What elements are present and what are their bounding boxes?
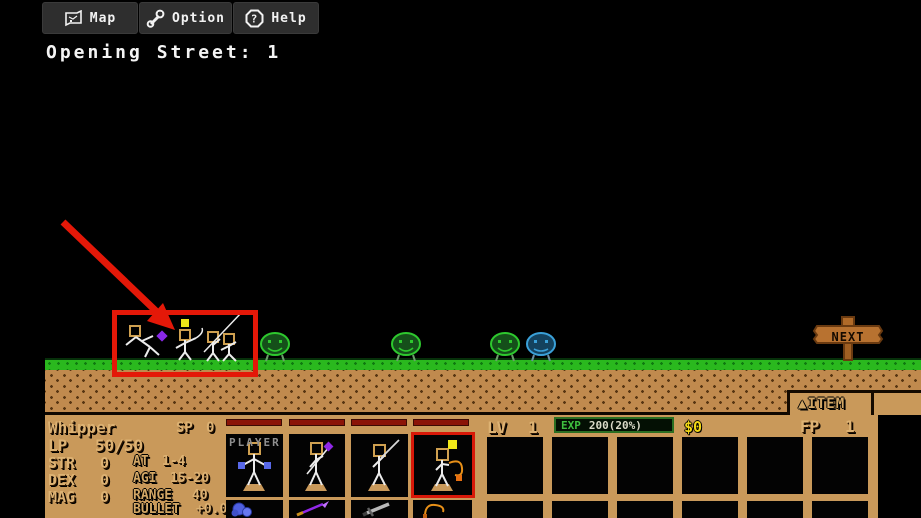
svg-text:?: ? [251,12,259,25]
item-tab-label: ITEM [807,396,845,412]
next-sign: NEXT [812,316,884,362]
at-value: 1-4 [162,454,185,469]
str-label: STR [48,454,75,472]
annotation-arrow [52,212,192,340]
wrench-icon [146,9,165,28]
sp-label: SP [176,420,193,436]
str-value: 0 [100,454,109,472]
spearman-figure-icon [289,434,345,497]
blue-fist-icon [226,500,283,518]
agi-value: 15-20 [170,471,209,486]
inventory-slot[interactable] [682,501,738,518]
lp-bar-slot-1 [226,419,282,426]
orange-whip-icon [413,500,472,518]
lp-bar-slot-3 [351,419,407,426]
exp-value: 200(20%) [589,419,642,432]
game-screen: Map Option ? Help Opening Street: 1 [0,0,921,518]
item-tab-button[interactable]: ▲ITEM [787,390,921,415]
lp-bar-slot-2 [289,419,345,426]
bullet-value: +0.0 [196,502,227,517]
fp-value: 1 [845,417,855,436]
gladiator-figure-icon [351,434,408,497]
player-label: PLAYER [229,436,281,449]
option-button[interactable]: Option [139,2,232,34]
party-slot-2[interactable] [289,434,345,497]
lp-label: LP [48,436,67,455]
inventory-slot[interactable] [812,501,868,518]
fp-label: FP [800,417,819,436]
panel-right-void [878,437,921,518]
green-smiley-walker-icon [488,332,522,362]
purple-spear-icon [289,500,345,518]
inventory-slot[interactable] [552,437,608,494]
item-tab-divider [871,393,874,415]
lv-label: LV [487,418,506,437]
agi-label: AGI [133,471,156,486]
dex-label: DEX [48,471,75,489]
map-icon [64,10,83,27]
next-sign-label: NEXT [832,330,865,344]
dex-value: 0 [100,471,109,489]
selected-slot-border [411,432,475,498]
mag-value: 0 [100,488,109,506]
exp-bar: EXP 200(20%) [554,417,674,433]
sp-value: 0 [206,420,214,436]
lp-bar-slot-4 [413,419,469,426]
help-button-label: Help [271,11,306,26]
green-smiley-walker-icon [389,332,423,362]
map-button[interactable]: Map [42,2,138,34]
blue-smiley-walker-icon [524,332,558,362]
inventory-slot[interactable] [747,501,803,518]
weapon-slot-3[interactable] [351,500,408,518]
lp-value: 50/50 [95,436,143,455]
range-value: 40 [192,488,208,503]
question-icon: ? [245,9,264,28]
weapon-slot-2[interactable] [289,500,345,518]
inventory-slot[interactable] [812,437,868,494]
weapon-slot-1[interactable] [226,500,283,518]
inventory-slot[interactable] [487,437,543,494]
help-button[interactable]: ? Help [233,2,319,34]
gray-sword-icon [351,500,408,518]
inventory-slot[interactable] [682,437,738,494]
lv-value: 1 [528,418,538,437]
inventory-slot[interactable] [552,501,608,518]
map-button-label: Map [90,11,116,26]
inventory-slot[interactable] [617,437,673,494]
weapon-slot-4[interactable] [413,500,472,518]
at-label: AT [133,454,149,469]
money-value: $0 [684,418,702,436]
mag-label: MAG [48,488,75,506]
stage-title: Opening Street: 1 [46,42,281,63]
inventory-slot[interactable] [617,501,673,518]
class-name: Whipper [48,418,115,437]
selection-marker-icon [448,440,457,449]
exp-label: EXP [561,419,581,432]
range-label: RANGE [133,488,172,503]
inventory-slot[interactable] [487,501,543,518]
option-button-label: Option [172,11,225,26]
inventory-slot[interactable] [747,437,803,494]
bullet-label: BULLET [133,502,180,517]
party-slot-3[interactable] [351,434,408,497]
